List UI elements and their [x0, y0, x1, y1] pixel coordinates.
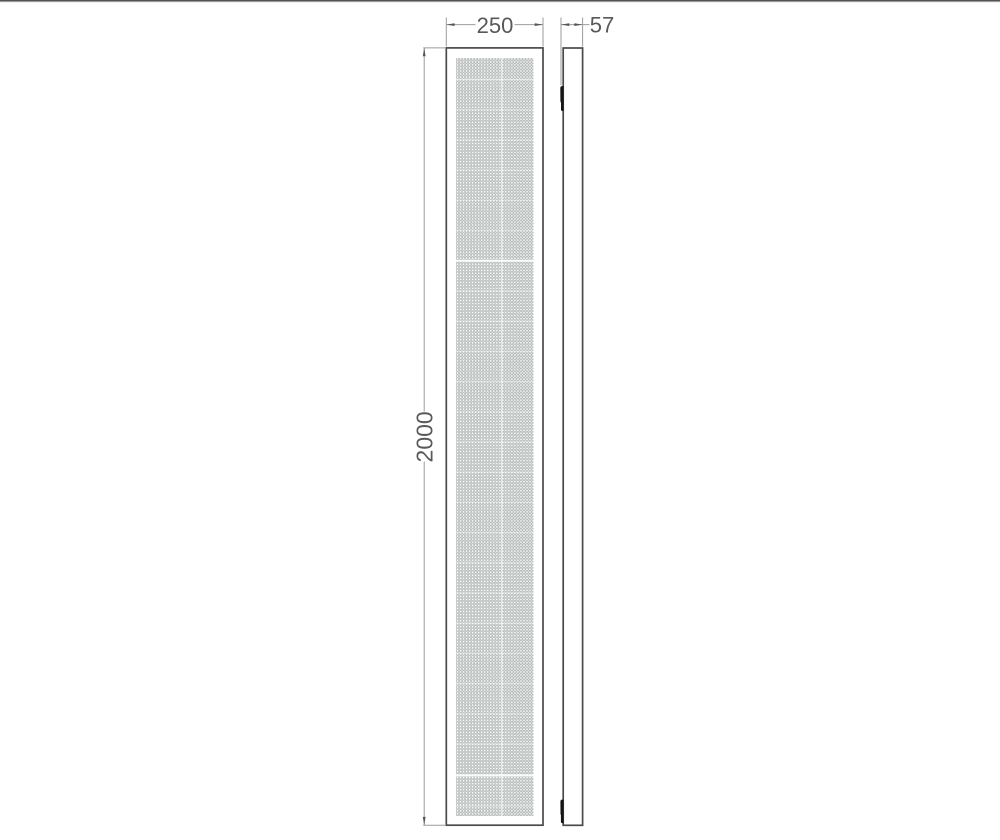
svg-text:2000: 2000 [412, 411, 438, 462]
svg-text:250: 250 [477, 13, 514, 38]
svg-text:57: 57 [590, 13, 614, 38]
